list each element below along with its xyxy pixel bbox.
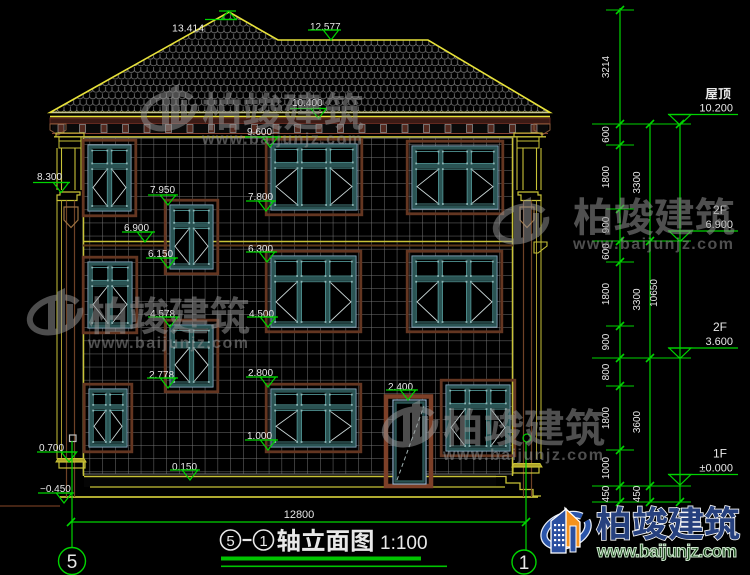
svg-text:10.200: 10.200 <box>699 103 733 115</box>
svg-text:1: 1 <box>519 553 530 574</box>
svg-text:0.150: 0.150 <box>172 462 197 473</box>
svg-text:8.300: 8.300 <box>37 172 62 183</box>
svg-text:900: 900 <box>601 333 612 350</box>
svg-text:1: 1 <box>259 533 267 550</box>
svg-text:10650: 10650 <box>649 279 660 307</box>
svg-text:5: 5 <box>67 552 78 573</box>
svg-text:www.baijunjz.com: www.baijunjz.com <box>87 335 248 352</box>
svg-text:3600: 3600 <box>632 410 643 433</box>
svg-text:www.baijunjz.com: www.baijunjz.com <box>572 236 733 253</box>
svg-text:12800: 12800 <box>284 509 315 521</box>
svg-text:800: 800 <box>601 363 612 380</box>
svg-text:1800: 1800 <box>601 282 612 305</box>
svg-text:12.577: 12.577 <box>310 22 341 33</box>
svg-text:5: 5 <box>226 533 234 550</box>
svg-text:600: 600 <box>601 126 612 143</box>
svg-text:1800: 1800 <box>601 165 612 188</box>
svg-text:1800: 1800 <box>601 406 612 429</box>
svg-text:3.600: 3.600 <box>705 336 733 348</box>
svg-text:www.baijunjz.com: www.baijunjz.com <box>596 541 737 561</box>
svg-text:13.414: 13.414 <box>172 23 204 35</box>
svg-text:450: 450 <box>632 485 643 502</box>
svg-text:2F: 2F <box>713 320 727 334</box>
svg-text:1F: 1F <box>713 447 727 461</box>
svg-text:3300: 3300 <box>632 288 643 311</box>
svg-text:7.950: 7.950 <box>150 185 175 196</box>
svg-text:450: 450 <box>601 485 612 502</box>
svg-text:1:100: 1:100 <box>380 533 428 554</box>
svg-text:±0.000: ±0.000 <box>699 463 733 475</box>
svg-text:3214: 3214 <box>601 55 612 78</box>
svg-text:www.baijunjz.com: www.baijunjz.com <box>201 131 362 148</box>
svg-text:3300: 3300 <box>632 171 643 194</box>
svg-text:www.baijunjz.com: www.baijunjz.com <box>442 447 603 464</box>
